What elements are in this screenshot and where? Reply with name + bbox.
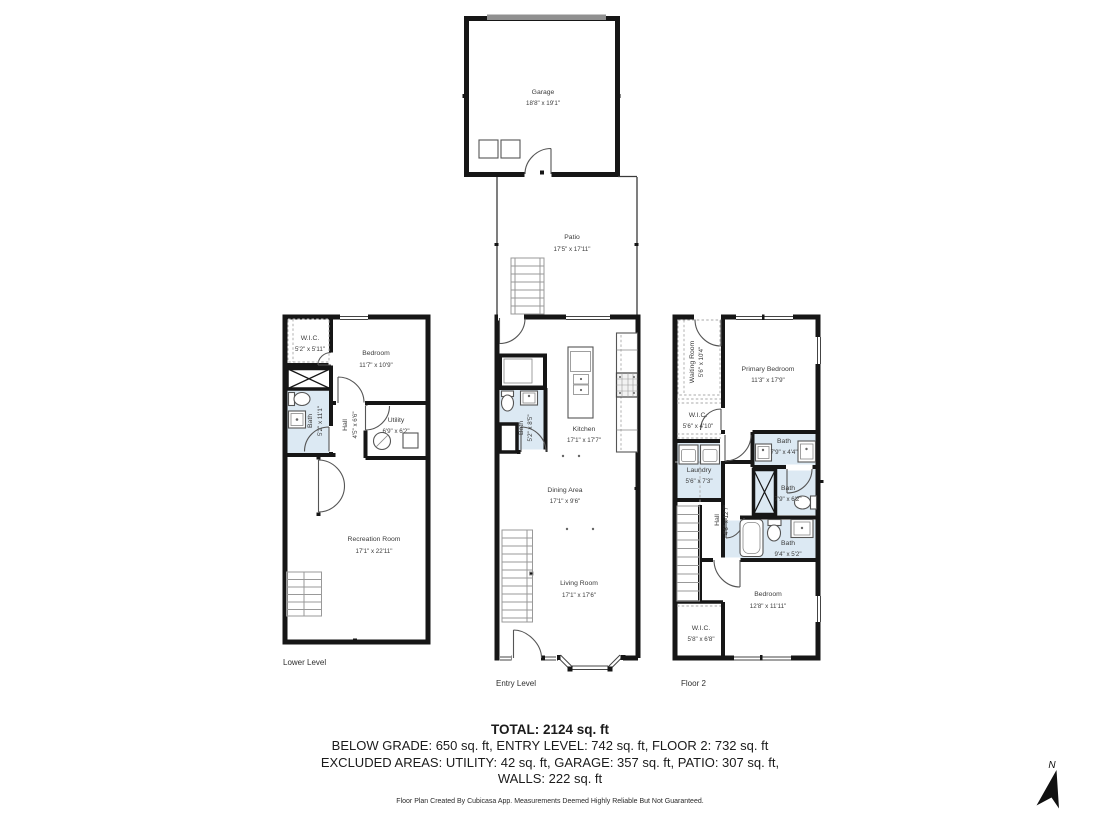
lower-level-label: Lower Level	[283, 658, 326, 667]
laundry-dims: 5'6" x 7'3"	[685, 478, 712, 485]
entry-level-plan: Bath 5'2" x 8'5" Kitchen 17'1" x 17'7" D…	[495, 315, 639, 689]
bedroom-dims: 12'8" x 11'11"	[750, 603, 786, 610]
excluded-areas: EXCLUDED AREAS: UTILITY: 42 sq. ft, GARA…	[0, 755, 1100, 772]
bath-top-dims: 7'9" x 4'4"	[770, 449, 797, 456]
garage-dims: 18'8" x 19'1"	[526, 100, 560, 107]
washer-icon	[679, 445, 698, 464]
garage-label: Garage	[532, 89, 555, 96]
bath-top-label: Bath	[777, 438, 791, 445]
wic-upper-dims: 5'6" x 4'10"	[683, 423, 714, 430]
patio-label: Patio	[564, 234, 580, 241]
patio-stairs	[511, 258, 544, 314]
wic-dims: 5'2" x 5'11"	[295, 346, 325, 353]
dining-label: Dining Area	[547, 487, 582, 494]
hall-dims: 4'6" x 12'7"	[723, 505, 730, 536]
kitchen-dims: 17'1" x 17'7"	[567, 437, 601, 444]
utility-label: Utility	[388, 417, 405, 424]
floorplan-page: Garage 18'8" x 19'1" Patio 17'5" x 17'11…	[0, 0, 1100, 825]
utility-dims: 6'9" x 6'2"	[382, 428, 409, 435]
living-label: Living Room	[560, 580, 598, 587]
bath-bottom-label: Bath	[781, 540, 795, 547]
appliance-icon	[479, 140, 498, 158]
garage-door	[487, 15, 606, 21]
wic-upper-label: W.I.C.	[689, 412, 708, 419]
dining-dims: 17'1" x 9'6"	[550, 498, 581, 505]
sink-icon	[521, 391, 538, 405]
bath-dims: 5'2" x 11'1"	[317, 406, 324, 436]
bath-mid-label: Bath	[781, 485, 795, 492]
appliance-icon	[501, 140, 520, 158]
bedroom-dims: 11'7" x 10'9"	[359, 362, 392, 369]
wic-lower-label: W.I.C.	[692, 625, 711, 632]
sink-icon	[756, 444, 772, 461]
toilet-icon	[502, 391, 514, 411]
toilet-icon	[768, 520, 782, 542]
living-dims: 17'1" x 17'6"	[562, 592, 596, 599]
door-arc	[525, 149, 551, 175]
recreation-dims: 17'1" x 22'11"	[356, 548, 393, 555]
toilet-icon	[289, 393, 311, 406]
bath-label: Bath	[518, 421, 525, 435]
floor2-plan: Waiting Room 5'6" x 10'4" Primary Bedroo…	[673, 315, 824, 689]
entry-level-label: Entry Level	[496, 679, 536, 688]
bath-mid-dims: 7'9" x 6'2"	[774, 496, 801, 503]
level-areas: BELOW GRADE: 650 sq. ft, ENTRY LEVEL: 74…	[0, 738, 1100, 755]
bath-label: Bath	[307, 414, 314, 428]
kitchen-island	[568, 347, 593, 418]
area-summary: TOTAL: 2124 sq. ft BELOW GRADE: 650 sq. …	[0, 722, 1100, 805]
hall-dims: 4'5" x 6'6"	[352, 411, 359, 438]
wic-label: W.I.C.	[301, 335, 320, 342]
primary-bedroom-dims: 11'3" x 17'9"	[751, 377, 784, 384]
bath-dims: 5'2" x 8'5"	[527, 414, 534, 441]
garage-plan: Garage 18'8" x 19'1"	[463, 15, 621, 178]
patio-plan: Patio 17'5" x 17'11"	[495, 177, 639, 316]
recreation-label: Recreation Room	[348, 536, 401, 543]
waiting-room-label: Waiting Room	[689, 340, 696, 383]
water-heater-icon	[374, 433, 391, 450]
sink-icon	[289, 411, 306, 428]
hall-label: Hall	[342, 419, 349, 431]
bedroom-label: Bedroom	[362, 350, 390, 357]
primary-bedroom-label: Primary Bedroom	[742, 366, 795, 373]
wic-lower-dims: 5'8" x 6'8"	[687, 636, 714, 643]
sink-icon	[798, 441, 816, 462]
bath-bottom-dims: 9'4" x 5'2"	[774, 551, 801, 558]
floor2-level-label: Floor 2	[681, 679, 706, 688]
hall-label: Hall	[714, 514, 721, 526]
bathtub-icon	[740, 520, 763, 557]
lower-level-plan: W.I.C. 5'2" x 5'11" Bedroom 11'7" x 10'9…	[283, 315, 430, 668]
laundry-label: Laundry	[687, 467, 712, 474]
walls-area: WALLS: 222 sq. ft	[0, 771, 1100, 788]
kitchen-counter	[617, 333, 638, 452]
floorplan-drawing: Garage 18'8" x 19'1" Patio 17'5" x 17'11…	[0, 0, 1100, 825]
total-area: TOTAL: 2124 sq. ft	[0, 722, 1100, 738]
dryer-icon	[701, 445, 720, 464]
disclaimer: Floor Plan Created By Cubicasa App. Meas…	[0, 798, 1100, 805]
sink-icon	[791, 520, 813, 538]
kitchen-label: Kitchen	[573, 426, 596, 433]
bedroom-label: Bedroom	[754, 591, 782, 598]
furnace-icon	[403, 433, 418, 448]
waiting-room-dims: 5'6" x 10'4"	[698, 347, 705, 378]
patio-dims: 17'5" x 17'11"	[554, 246, 591, 253]
